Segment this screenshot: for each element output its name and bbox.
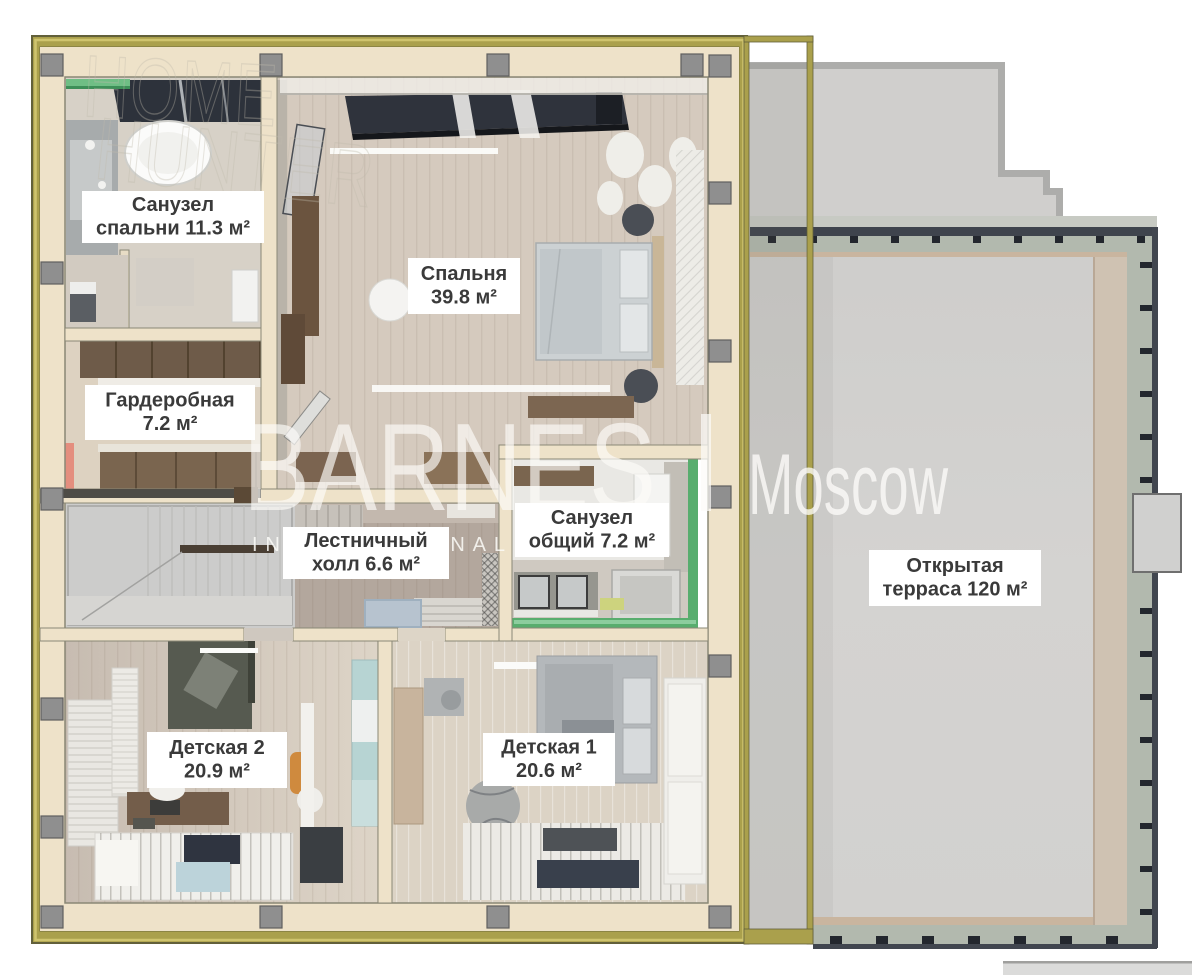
svg-text:39.8 м²: 39.8 м² [431, 287, 497, 309]
svg-text:Спальня: Спальня [421, 263, 507, 285]
svg-text:спальни 11.3 м²: спальни 11.3 м² [96, 218, 250, 240]
svg-text:Гардеробная: Гардеробная [105, 390, 234, 412]
svg-text:Открытая: Открытая [906, 555, 1003, 577]
svg-text:20.9 м²: 20.9 м² [184, 761, 250, 783]
svg-text:Детская 1: Детская 1 [501, 737, 597, 759]
svg-text:общий 7.2 м²: общий 7.2 м² [529, 531, 656, 553]
svg-text:Санузел: Санузел [132, 194, 214, 216]
svg-text:20.6 м²: 20.6 м² [516, 760, 582, 782]
svg-text:Лестничный: Лестничный [304, 530, 427, 552]
svg-text:Детская 2: Детская 2 [169, 737, 265, 759]
svg-text:терраса 120 м²: терраса 120 м² [883, 579, 1028, 601]
svg-text:холл 6.6 м²: холл 6.6 м² [312, 554, 420, 576]
svg-text:Санузел: Санузел [551, 507, 633, 529]
svg-text:Moscow: Moscow [748, 437, 949, 533]
svg-text:7.2 м²: 7.2 м² [143, 413, 198, 435]
